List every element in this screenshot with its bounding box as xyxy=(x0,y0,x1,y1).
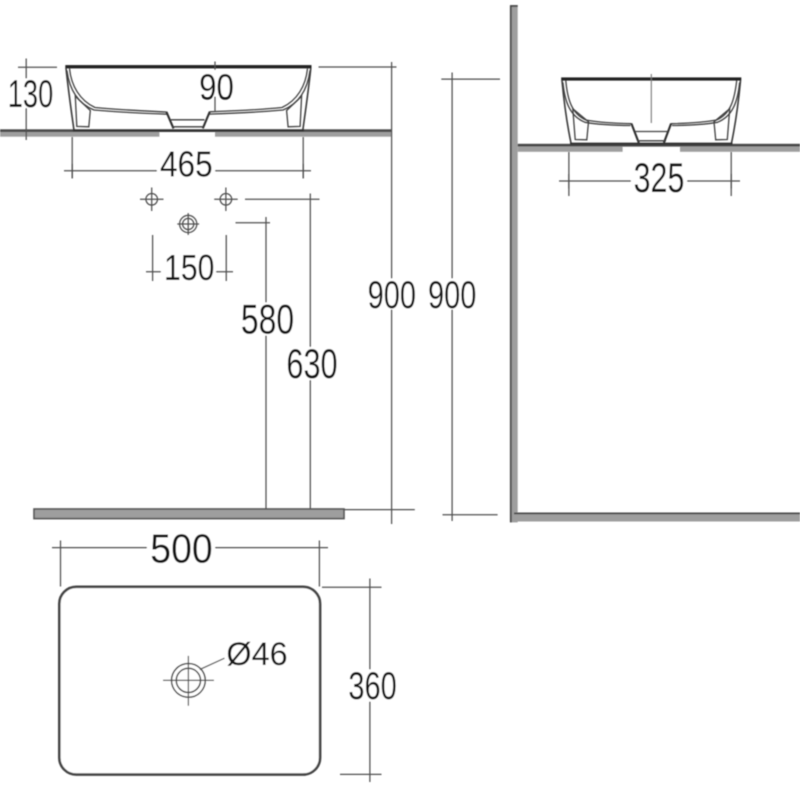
svg-text:900: 900 xyxy=(368,274,416,317)
svg-text:150: 150 xyxy=(164,248,214,288)
svg-text:325: 325 xyxy=(634,154,685,201)
svg-text:630: 630 xyxy=(286,340,337,387)
svg-text:Ø46: Ø46 xyxy=(226,636,287,672)
svg-text:900: 900 xyxy=(428,274,476,317)
svg-text:465: 465 xyxy=(160,144,213,185)
svg-text:90: 90 xyxy=(199,67,234,108)
svg-text:500: 500 xyxy=(150,527,212,572)
svg-text:130: 130 xyxy=(8,72,53,116)
svg-text:360: 360 xyxy=(348,665,396,708)
svg-text:580: 580 xyxy=(241,295,294,342)
